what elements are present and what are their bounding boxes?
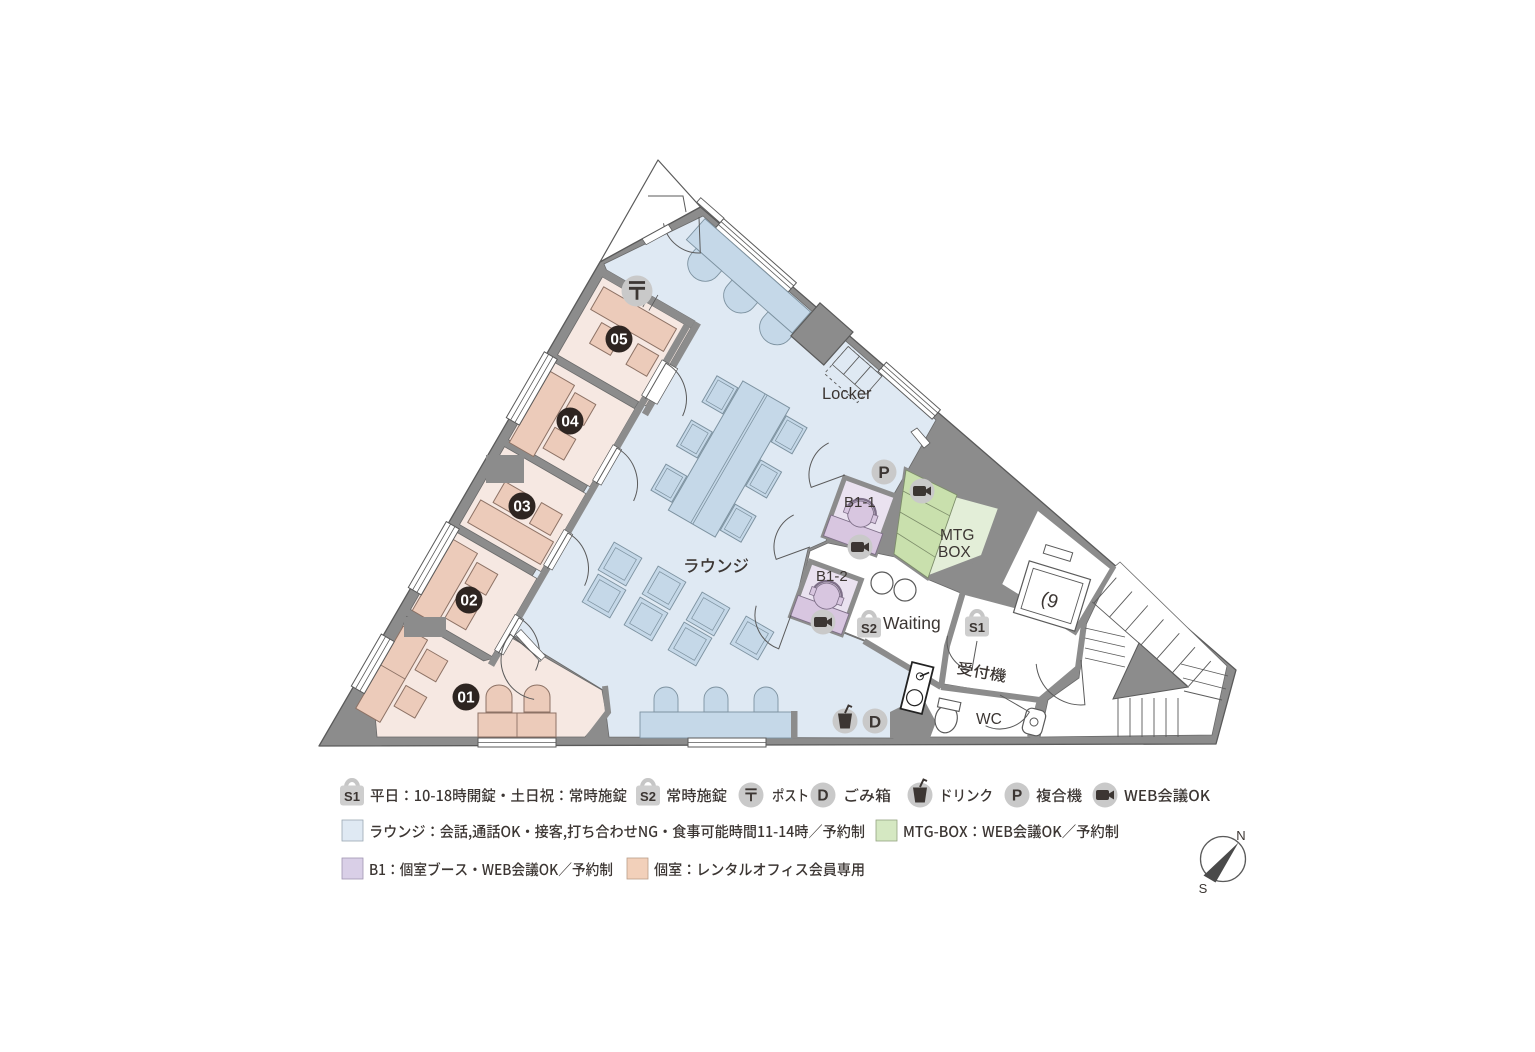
- svg-text:01: 01: [457, 690, 475, 707]
- svg-text:05: 05: [610, 332, 628, 349]
- svg-text:B1-1: B1-1: [844, 494, 876, 511]
- svg-text:MTG: MTG: [940, 527, 974, 544]
- svg-text:02: 02: [460, 593, 477, 610]
- svg-text:S: S: [1199, 881, 1208, 896]
- svg-text:04: 04: [561, 414, 579, 431]
- svg-text:S2: S2: [861, 621, 877, 636]
- svg-text:P: P: [1012, 788, 1022, 805]
- svg-text:S1: S1: [344, 789, 360, 804]
- svg-text:BOX: BOX: [938, 544, 971, 561]
- svg-text:S1: S1: [969, 620, 985, 635]
- svg-text:03: 03: [513, 499, 531, 516]
- svg-text:P: P: [878, 463, 889, 482]
- svg-text:Locker: Locker: [822, 385, 872, 403]
- svg-text:Waiting: Waiting: [883, 613, 941, 633]
- svg-text:WC: WC: [976, 711, 1002, 728]
- svg-text:N: N: [1236, 828, 1245, 843]
- svg-text:D: D: [869, 713, 881, 732]
- svg-text:S2: S2: [640, 789, 656, 804]
- svg-text:B1-2: B1-2: [816, 568, 848, 585]
- svg-text:D: D: [817, 788, 828, 805]
